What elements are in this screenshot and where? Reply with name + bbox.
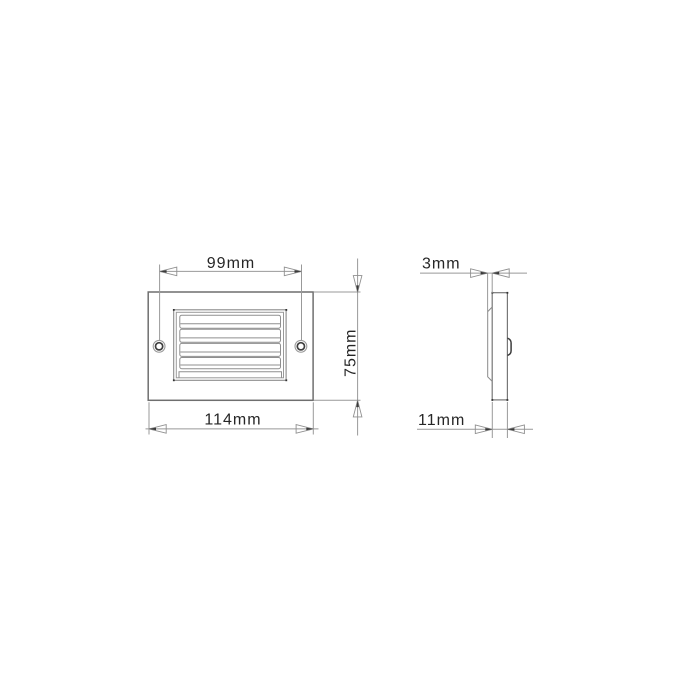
svg-text:75mm: 75mm: [343, 328, 360, 376]
svg-text:11mm: 11mm: [418, 412, 465, 429]
svg-text:3mm: 3mm: [422, 255, 461, 272]
svg-text:99mm: 99mm: [207, 255, 255, 272]
svg-text:114mm: 114mm: [204, 412, 261, 429]
